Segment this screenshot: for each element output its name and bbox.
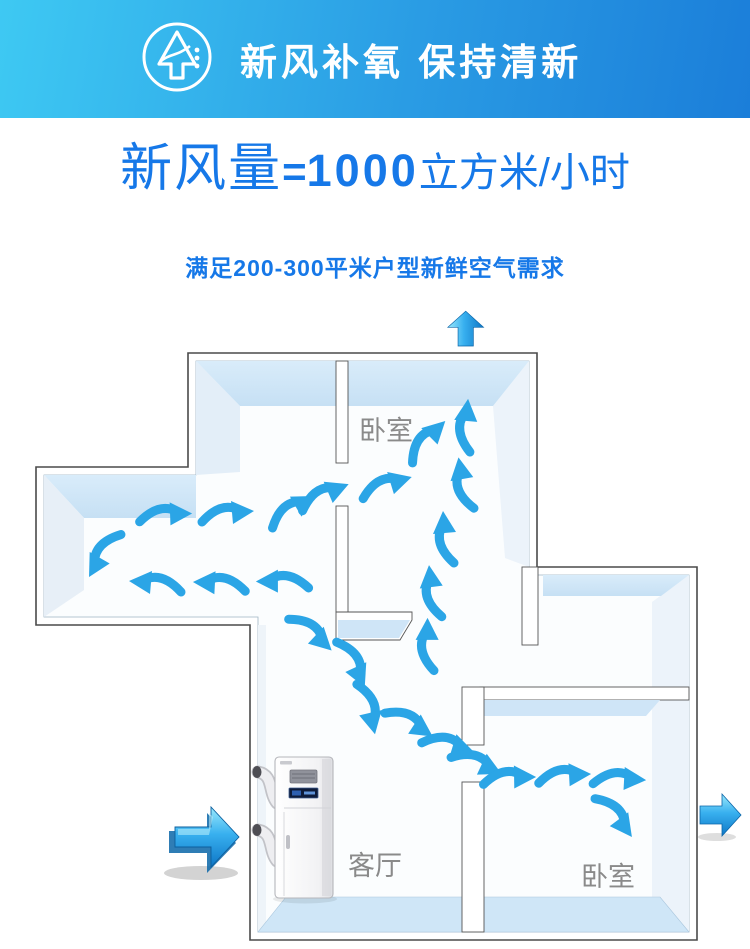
page: 新风补氧 保持清新 新风量=1000立方米/小时 满足200-300平米户型新鲜…: [0, 0, 750, 949]
exhaust-arrow-top: [448, 311, 484, 346]
pipe-wall-fitting: [253, 766, 262, 778]
floor-plan: 卧室客厅卧室: [0, 300, 750, 949]
tree-fresh-air-icon: [140, 20, 214, 99]
headline-unit: 立方米/小时: [419, 151, 630, 195]
room-label-living-room: 客厅: [348, 851, 402, 881]
headline: 新风量=1000立方米/小时: [0, 126, 750, 198]
exhaust-arrow-right: [698, 794, 741, 841]
room-label-bedroom-top: 卧室: [359, 416, 413, 446]
subtitle: 满足200-300平米户型新鲜空气需求: [0, 249, 750, 283]
headline-label: 新风量: [120, 140, 282, 198]
headline-value: 1000: [307, 145, 419, 196]
unit-grille: [290, 770, 317, 783]
headline-equals: =: [282, 148, 307, 195]
unit-handle: [286, 835, 290, 849]
pipe-wall-fitting: [253, 824, 262, 836]
banner-title: 新风补氧 保持清新: [240, 32, 582, 86]
intake-arrow-left: [164, 807, 239, 880]
header-banner: 新风补氧 保持清新: [0, 0, 750, 118]
room-label-bedroom-right: 卧室: [581, 862, 635, 892]
